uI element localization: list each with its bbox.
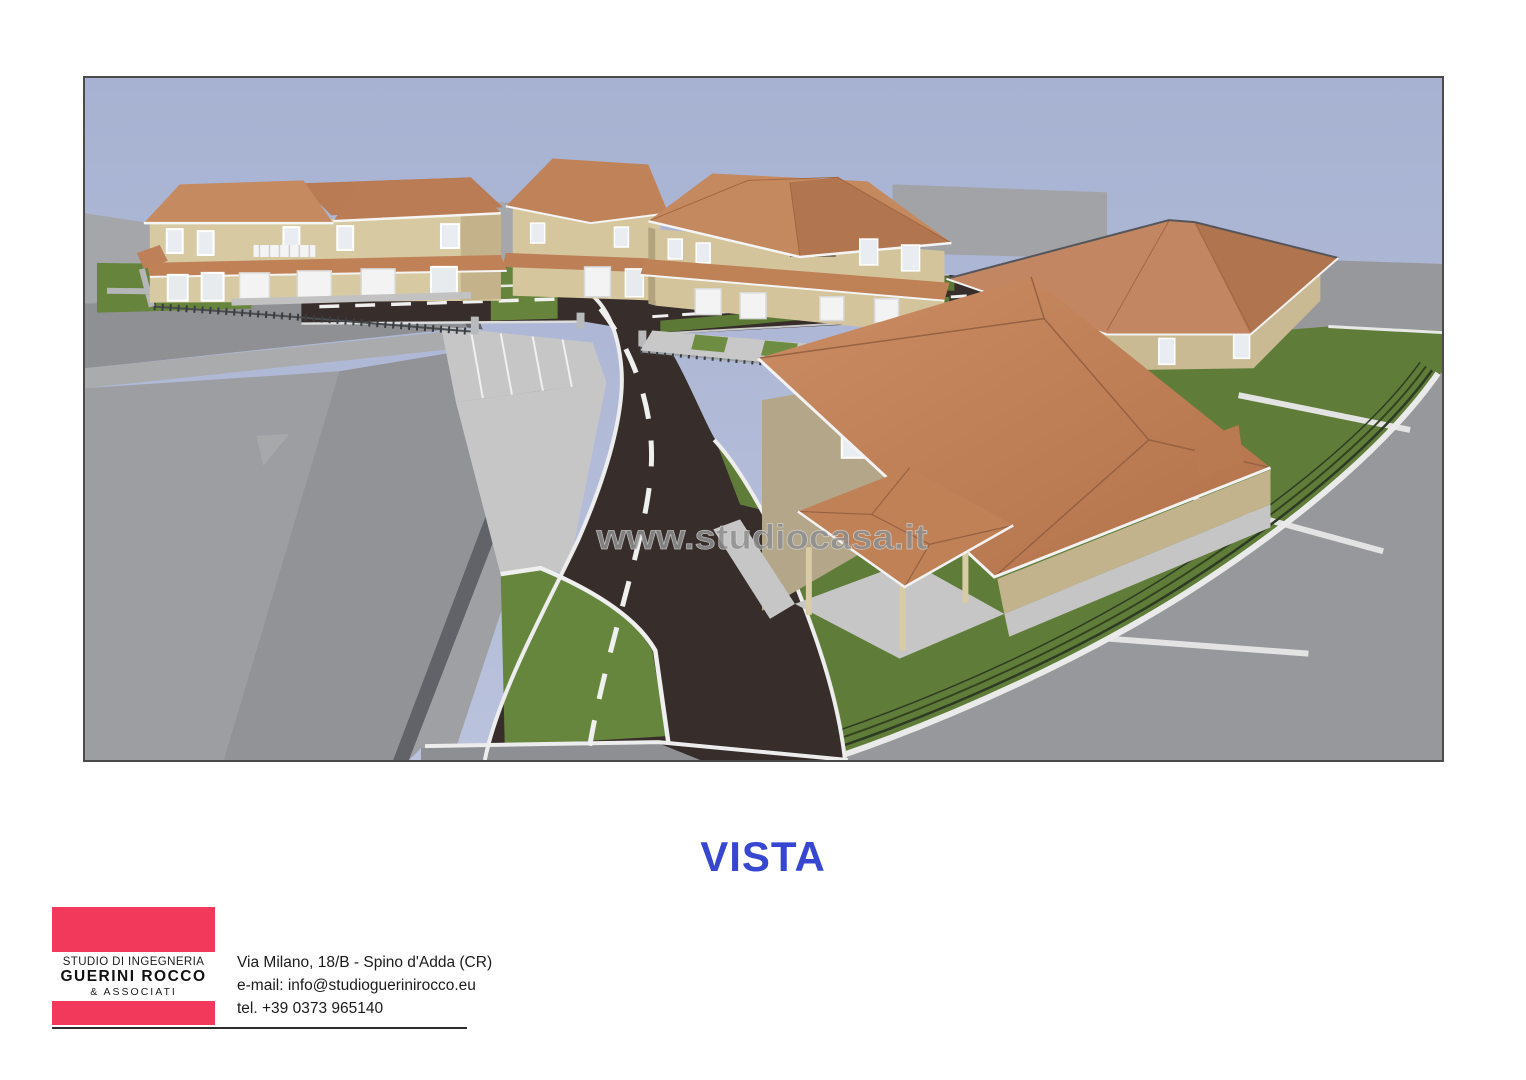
architectural-render: www.studiocasa.it bbox=[85, 78, 1442, 760]
document-page: www.studiocasa.it VISTA STUDIO DI INGEGN… bbox=[0, 0, 1526, 1080]
contact-address: Via Milano, 18/B - Spino d'Adda (CR) bbox=[237, 951, 492, 974]
contact-block: Via Milano, 18/B - Spino d'Adda (CR) e-m… bbox=[237, 951, 492, 1020]
firm-type-label: STUDIO DI INGEGNERIA bbox=[52, 956, 215, 968]
firm-name: GUERINI ROCCO bbox=[52, 968, 215, 986]
contact-phone: tel. +39 0373 965140 bbox=[237, 997, 492, 1020]
render-viewport: www.studiocasa.it bbox=[83, 76, 1444, 762]
contact-email: e-mail: info@studioguerinirocco.eu bbox=[237, 974, 492, 997]
logo-bar-top bbox=[52, 907, 215, 952]
logo-bar-bottom bbox=[52, 1001, 215, 1025]
firm-logo: STUDIO DI INGEGNERIA GUERINI ROCCO & ASS… bbox=[52, 907, 215, 1025]
firm-associates-label: & ASSOCIATI bbox=[52, 986, 215, 998]
footer-divider bbox=[52, 1027, 467, 1029]
view-title: VISTA bbox=[0, 833, 1526, 881]
watermark-text: www.studiocasa.it bbox=[595, 518, 928, 557]
